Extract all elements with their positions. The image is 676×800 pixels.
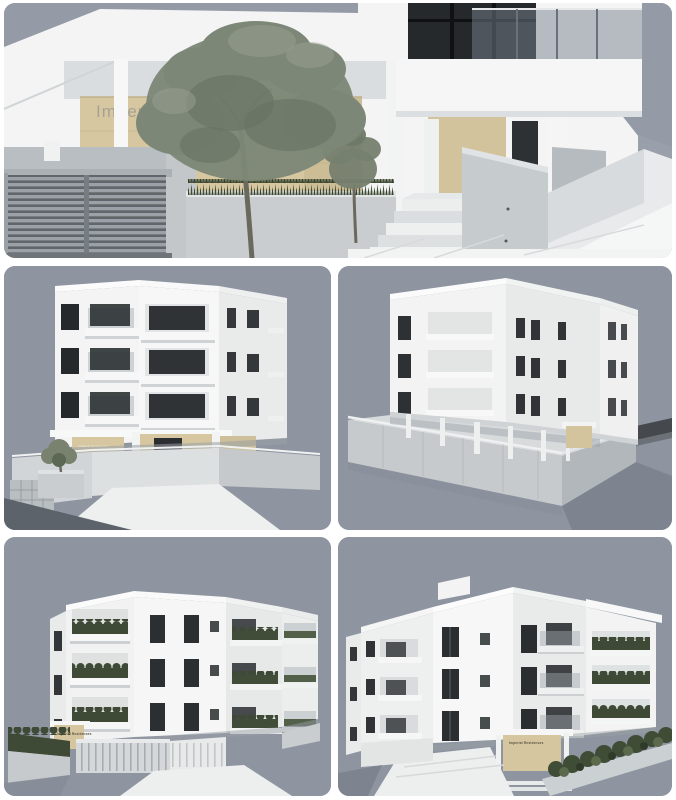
boundary-wall-and-gate — [4, 141, 196, 258]
entrance-sign-text: Imperial Residences — [509, 741, 544, 745]
right-volume-planted-balconies — [230, 619, 282, 734]
balcony-fascia — [396, 59, 642, 117]
right-volume-balconies — [521, 623, 584, 738]
landscaped-right-render: Imperial Residences — [338, 537, 672, 796]
concrete-planter — [186, 179, 396, 258]
entrance-closeup-render: Imperial Resi — [4, 3, 672, 258]
landscaped-left-render: Imperial Residences — [4, 537, 331, 796]
far-right-planted-balconies — [590, 631, 652, 724]
gallery-image-landscaped-right-view[interactable]: Imperial Residences — [338, 537, 672, 796]
front-left-render: Imperial Residences — [4, 266, 331, 530]
gallery-image-landscaped-left-view[interactable]: Imperial Residences — [4, 537, 331, 796]
far-right-balconies — [282, 623, 318, 732]
gallery-image-entrance-closeup[interactable]: Imperial Resi — [4, 3, 672, 258]
slatted-fence — [76, 739, 170, 773]
gallery-image-rear-corner-view[interactable] — [338, 266, 672, 530]
gallery-image-front-left-view[interactable]: Imperial Residences — [4, 266, 331, 530]
rear-corner-render — [338, 266, 672, 530]
garage-door — [170, 737, 226, 771]
left-volume-floors — [61, 304, 139, 427]
upper-right-building — [396, 3, 642, 117]
entrance-beige-wall — [562, 422, 596, 448]
left-volume-planted-balconies — [70, 609, 130, 732]
render-collage: Imperial Resi — [0, 0, 676, 800]
left-wing-balconies — [366, 639, 422, 739]
middle-volume-floors — [141, 304, 215, 431]
